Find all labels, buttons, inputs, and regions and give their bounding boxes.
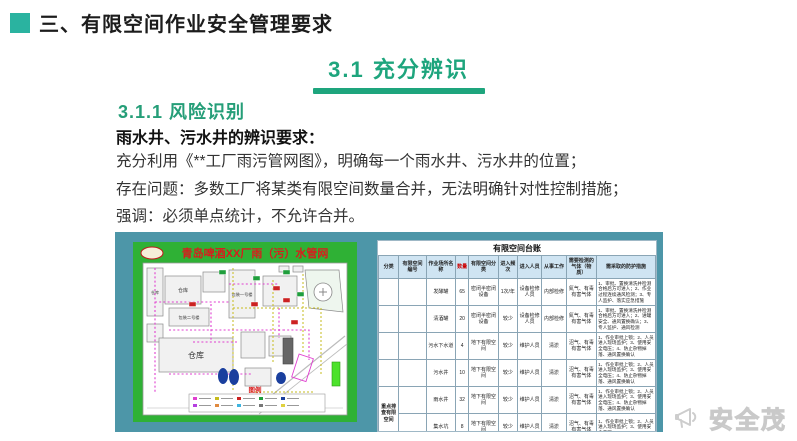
space-code-cell <box>399 306 426 333</box>
ledger-cell-freq: 较少 <box>498 387 517 414</box>
ledger-cell-freq: 1次/年 <box>498 279 517 306</box>
body-line: 存在问题：多数工厂将某类有限空间数量合并，无法明确针对性控制措施； <box>116 176 716 204</box>
ledger-cell-work: 清淤 <box>542 333 566 360</box>
ledger-col-header: 有限空间分类 <box>469 256 498 279</box>
section-heading: 3.1 充分辨识 <box>0 52 797 94</box>
map-logo <box>141 247 163 259</box>
section-underline <box>313 88 485 94</box>
ledger-header-row: 分类有限空间编号作业场所名称数量有限空间分类进入频次进入人员从事工作需要检测的气… <box>379 256 656 279</box>
table-row: 清酒罐20密闭半密闭设备较少设备检修人员内部检修氮气、有毒有害气体1、审批、置换… <box>379 306 656 333</box>
ledger-cell-freq: 较少 <box>498 333 517 360</box>
watermark-text: 安全茂 <box>709 400 787 435</box>
ledger-col-header: 作业场所名称 <box>426 256 455 279</box>
ledger-cell-people: 维护人员 <box>517 333 541 360</box>
space-code-cell <box>399 414 426 433</box>
ledger-col-header: 有限空间编号 <box>399 256 426 279</box>
ledger-cell-measures: 1、作业审批上锁；2、人员进入现场监护；3、使用安全电压；4、防止杂物掉落、通风… <box>597 387 656 414</box>
ledger-cell-work: 内部检修 <box>542 279 566 306</box>
ledger-cell-measures: 1、作业审批上锁；2、人员进入现场监护；3、使用安全电压；4、防止杂物掉落、通风… <box>597 333 656 360</box>
ledger-cell-gas: 氮气、有毒有害气体 <box>566 279 596 306</box>
ledger-col-header: 需采取的防护措施 <box>597 256 656 279</box>
ledger-cell-measures: 1、审批、置换清洗并检测合格后方可进入；2、进罐安全、通风置换确认；3、专人监护… <box>597 306 656 333</box>
space-code-cell <box>399 387 426 414</box>
ledger-cell-work: 清淤 <box>542 387 566 414</box>
category-cell <box>379 333 399 360</box>
page-title: 三、有限空间作业安全管理要求 <box>39 8 333 37</box>
title-bullet-square <box>10 13 30 33</box>
body-line: 充分利用《**工厂雨污管网图》，明确每一个雨水井、污水井的位置； <box>116 148 716 176</box>
ledger-col-header: 从事工作 <box>542 256 566 279</box>
ledger-cell-name: 污水井 <box>426 360 455 387</box>
ledger-cell-type: 密闭半密闭设备 <box>469 279 498 306</box>
ledger-col-header: 需要检测的气体（物质） <box>566 256 596 279</box>
ledger-cell-measures: 1、作业审批上锁；2、人员进入现场监护；3、使用安全电压；4、防止杂物掉落、通风… <box>597 360 656 387</box>
ledger-cell-qty: 10 <box>456 360 469 387</box>
ledger-cell-name: 污水下水道 <box>426 333 455 360</box>
ledger-cell-type: 地下有限空间 <box>469 414 498 433</box>
table-row: 污水井10地下有限空间较少维护人员清淤沼气、有毒有害气体1、作业审批上锁；2、人… <box>379 360 656 387</box>
ledger-cell-name: 集水坑 <box>426 414 455 433</box>
category-cell <box>379 306 399 333</box>
subsection-title: 3.1.1 风险识别 <box>118 98 245 124</box>
ledger-cell-measures: 1、审批、置换清洗并检测合格后方可进入；2、作业过程连续通风检测；3、专人监护、… <box>597 279 656 306</box>
map-image: 青岛啤酒XX厂雨（污）水管网 <box>133 242 357 422</box>
megaphone-icon <box>673 403 703 433</box>
ledger-cell-type: 地下有限空间 <box>469 387 498 414</box>
body-text: 充分利用《**工厂雨污管网图》，明确每一个雨水井、污水井的位置； 存在问题：多数… <box>116 148 716 231</box>
category-cell <box>379 279 399 306</box>
slide: 三、有限空间作业安全管理要求 3.1 充分辨识 3.1.1 风险识别 雨水井、污… <box>0 0 797 441</box>
section-title: 3.1 充分辨识 <box>328 52 469 84</box>
ledger-cell-qty: 65 <box>456 279 469 306</box>
ledger-cell-people: 设备检修人员 <box>517 279 541 306</box>
ledger-cell-freq: 较少 <box>498 306 517 333</box>
map-title: 青岛啤酒XX厂雨（污）水管网 <box>182 246 329 260</box>
ledger-cell-people: 维护人员 <box>517 414 541 433</box>
map-label-warehouse1: 仓库 <box>178 287 188 294</box>
page-title-row: 三、有限空间作业安全管理要求 <box>10 8 333 37</box>
table-row: 发酵罐65密闭半密闭设备1次/年设备检修人员内部检修氮气、有毒有害气体1、审批、… <box>379 279 656 306</box>
ledger-col-header: 进入频次 <box>498 256 517 279</box>
ledger-cell-qty: 8 <box>456 414 469 433</box>
ledger-cell-work: 清淤 <box>542 414 566 433</box>
ledger-cell-freq: 较少 <box>498 414 517 433</box>
body-line: 强调：必须单点统计，不允许合并。 <box>116 203 716 231</box>
ledger-col-header: 分类 <box>379 256 399 279</box>
map-label-pack2: 包装二号楼 <box>179 314 200 321</box>
map-label-pack1: 包装一号楼 <box>232 291 253 298</box>
ledger-cell-people: 设备检修人员 <box>517 306 541 333</box>
table-row: 重点排查有限空间雨水井32地下有限空间较少维护人员清淤沼气、有毒有害气体1、作业… <box>379 387 656 414</box>
ledger-cell-name: 雨水井 <box>426 387 455 414</box>
ledger-cell-type: 密闭半密闭设备 <box>469 306 498 333</box>
content-panel: 青岛啤酒XX厂雨（污）水管网 <box>115 232 663 432</box>
ledger-cell-gas: 沼气、有毒有害气体 <box>566 414 596 433</box>
ledger-cell-freq: 较少 <box>498 360 517 387</box>
space-code-cell <box>399 333 426 360</box>
table-row: 污水下水道4地下有限空间较少维护人员清淤沼气、有毒有害气体1、作业审批上锁；2、… <box>379 333 656 360</box>
ledger-cell-gas: 氮气、有毒有害气体 <box>566 306 596 333</box>
category-cell: 重点排查有限空间 <box>379 387 399 433</box>
pipe-network-map: 青岛啤酒XX厂雨（污）水管网 <box>133 242 357 422</box>
map-legend-title: 图例 <box>249 385 263 394</box>
ledger-cell-work: 内部检修 <box>542 306 566 333</box>
ledger-cell-work: 清淤 <box>542 360 566 387</box>
space-code-cell <box>399 279 426 306</box>
table-row: 集水坑8地下有限空间较少维护人员清淤沼气、有毒有害气体1、作业审批上锁；2、人员… <box>379 414 656 433</box>
ledger-cell-gas: 沼气、有毒有害气体 <box>566 333 596 360</box>
confined-space-ledger: 有限空间台账 分类有限空间编号作业场所名称数量有限空间分类进入频次进入人员从事工… <box>377 240 657 432</box>
ledger-cell-gas: 沼气、有毒有害气体 <box>566 387 596 414</box>
ledger-title: 有限空间台账 <box>378 241 656 255</box>
category-cell <box>379 360 399 387</box>
watermark: 安全茂 <box>673 400 787 435</box>
ledger-cell-type: 地下有限空间 <box>469 360 498 387</box>
ledger-table: 分类有限空间编号作业场所名称数量有限空间分类进入频次进入人员从事工作需要检测的气… <box>378 255 656 432</box>
ledger-cell-qty: 20 <box>456 306 469 333</box>
ledger-cell-measures: 1、作业审批上锁；2、人员进入现场监护；3、使用安全电压 <box>597 414 656 433</box>
ledger-cell-type: 地下有限空间 <box>469 333 498 360</box>
ledger-cell-qty: 32 <box>456 387 469 414</box>
map-label-warehouse-big: 仓库 <box>188 350 204 360</box>
space-code-cell <box>399 360 426 387</box>
ledger-cell-name: 清酒罐 <box>426 306 455 333</box>
ledger-cell-gas: 沼气、有毒有害气体 <box>566 360 596 387</box>
ledger-cell-qty: 4 <box>456 333 469 360</box>
subheading: 雨水井、污水井的辨识要求： <box>116 124 324 148</box>
ledger-col-header: 数量 <box>456 256 469 279</box>
ledger-cell-people: 维护人员 <box>517 360 541 387</box>
ledger-cell-name: 发酵罐 <box>426 279 455 306</box>
ledger-col-header: 进入人员 <box>517 256 541 279</box>
ledger-cell-people: 维护人员 <box>517 387 541 414</box>
